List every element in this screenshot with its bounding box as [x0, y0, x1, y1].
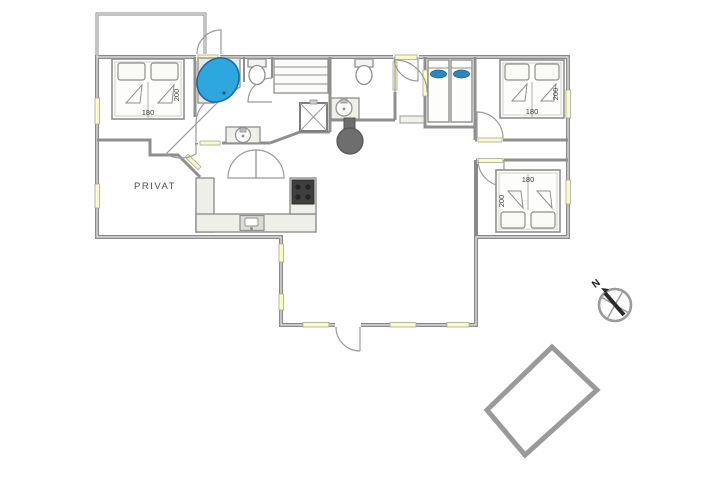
pillow [505, 64, 529, 80]
compass-needle [605, 293, 624, 315]
window-left-1 [95, 98, 100, 124]
window-living-left-1 [279, 244, 284, 262]
floor-plan: 180 200 180 200 180 200 [0, 0, 718, 479]
washbasin-icon [226, 127, 260, 143]
washbasin-icon [331, 98, 359, 119]
sauna-benches-icon [274, 59, 328, 93]
privat-room-label: PRIVAT [134, 181, 176, 192]
door-arc-living-exit [336, 327, 360, 351]
window-left-2 [95, 184, 100, 208]
threshold-bedroom2-door [478, 138, 502, 142]
pillow [454, 70, 470, 78]
threshold-entrance-door [395, 55, 417, 60]
window-living-bottom-1 [303, 323, 329, 328]
pillow [118, 63, 145, 80]
bedroom-1: 180 200 [112, 59, 184, 119]
window-living-bottom-3 [447, 323, 469, 328]
terrace-outline [487, 347, 597, 455]
sink-icon [240, 216, 264, 231]
window-living-left-2 [279, 294, 284, 310]
bed-length-label: 200 [172, 89, 181, 102]
shower-icon [300, 100, 327, 131]
threshold-bathroom1-door [200, 141, 220, 145]
pillow [431, 70, 447, 78]
window-right-2 [566, 180, 571, 204]
bunk-bed-icon [451, 60, 472, 122]
bed-width-label: 180 [522, 175, 535, 184]
pillow [531, 212, 555, 228]
stove-icon [292, 180, 314, 204]
bed-length-label: 200 [497, 195, 506, 208]
annex-floor [97, 14, 205, 57]
toilet-icon [248, 59, 266, 85]
toilet-icon [355, 59, 373, 85]
entry-bench [400, 116, 424, 123]
bathtub-drain [222, 91, 225, 94]
bedroom-3: 180 200 [496, 170, 560, 232]
bed-width-label: 180 [142, 108, 155, 117]
window-right-1 [566, 90, 571, 118]
window-living-bottom-2 [390, 323, 416, 328]
bed-width-label: 180 [526, 107, 539, 116]
pillow [501, 212, 525, 228]
pillow [535, 64, 559, 80]
bed-length-label: 200 [551, 88, 560, 101]
compass-rose-icon: N [590, 277, 631, 321]
threshold-bedroom3-door [478, 159, 503, 163]
bunk-bed-icon [428, 60, 449, 122]
bedroom-2: 180 200 [500, 60, 564, 118]
compass-north-label: N [590, 277, 602, 290]
living-floor [281, 237, 476, 325]
floor-plan-page: 180 200 180 200 180 200 [0, 0, 718, 479]
pillow [151, 63, 178, 80]
